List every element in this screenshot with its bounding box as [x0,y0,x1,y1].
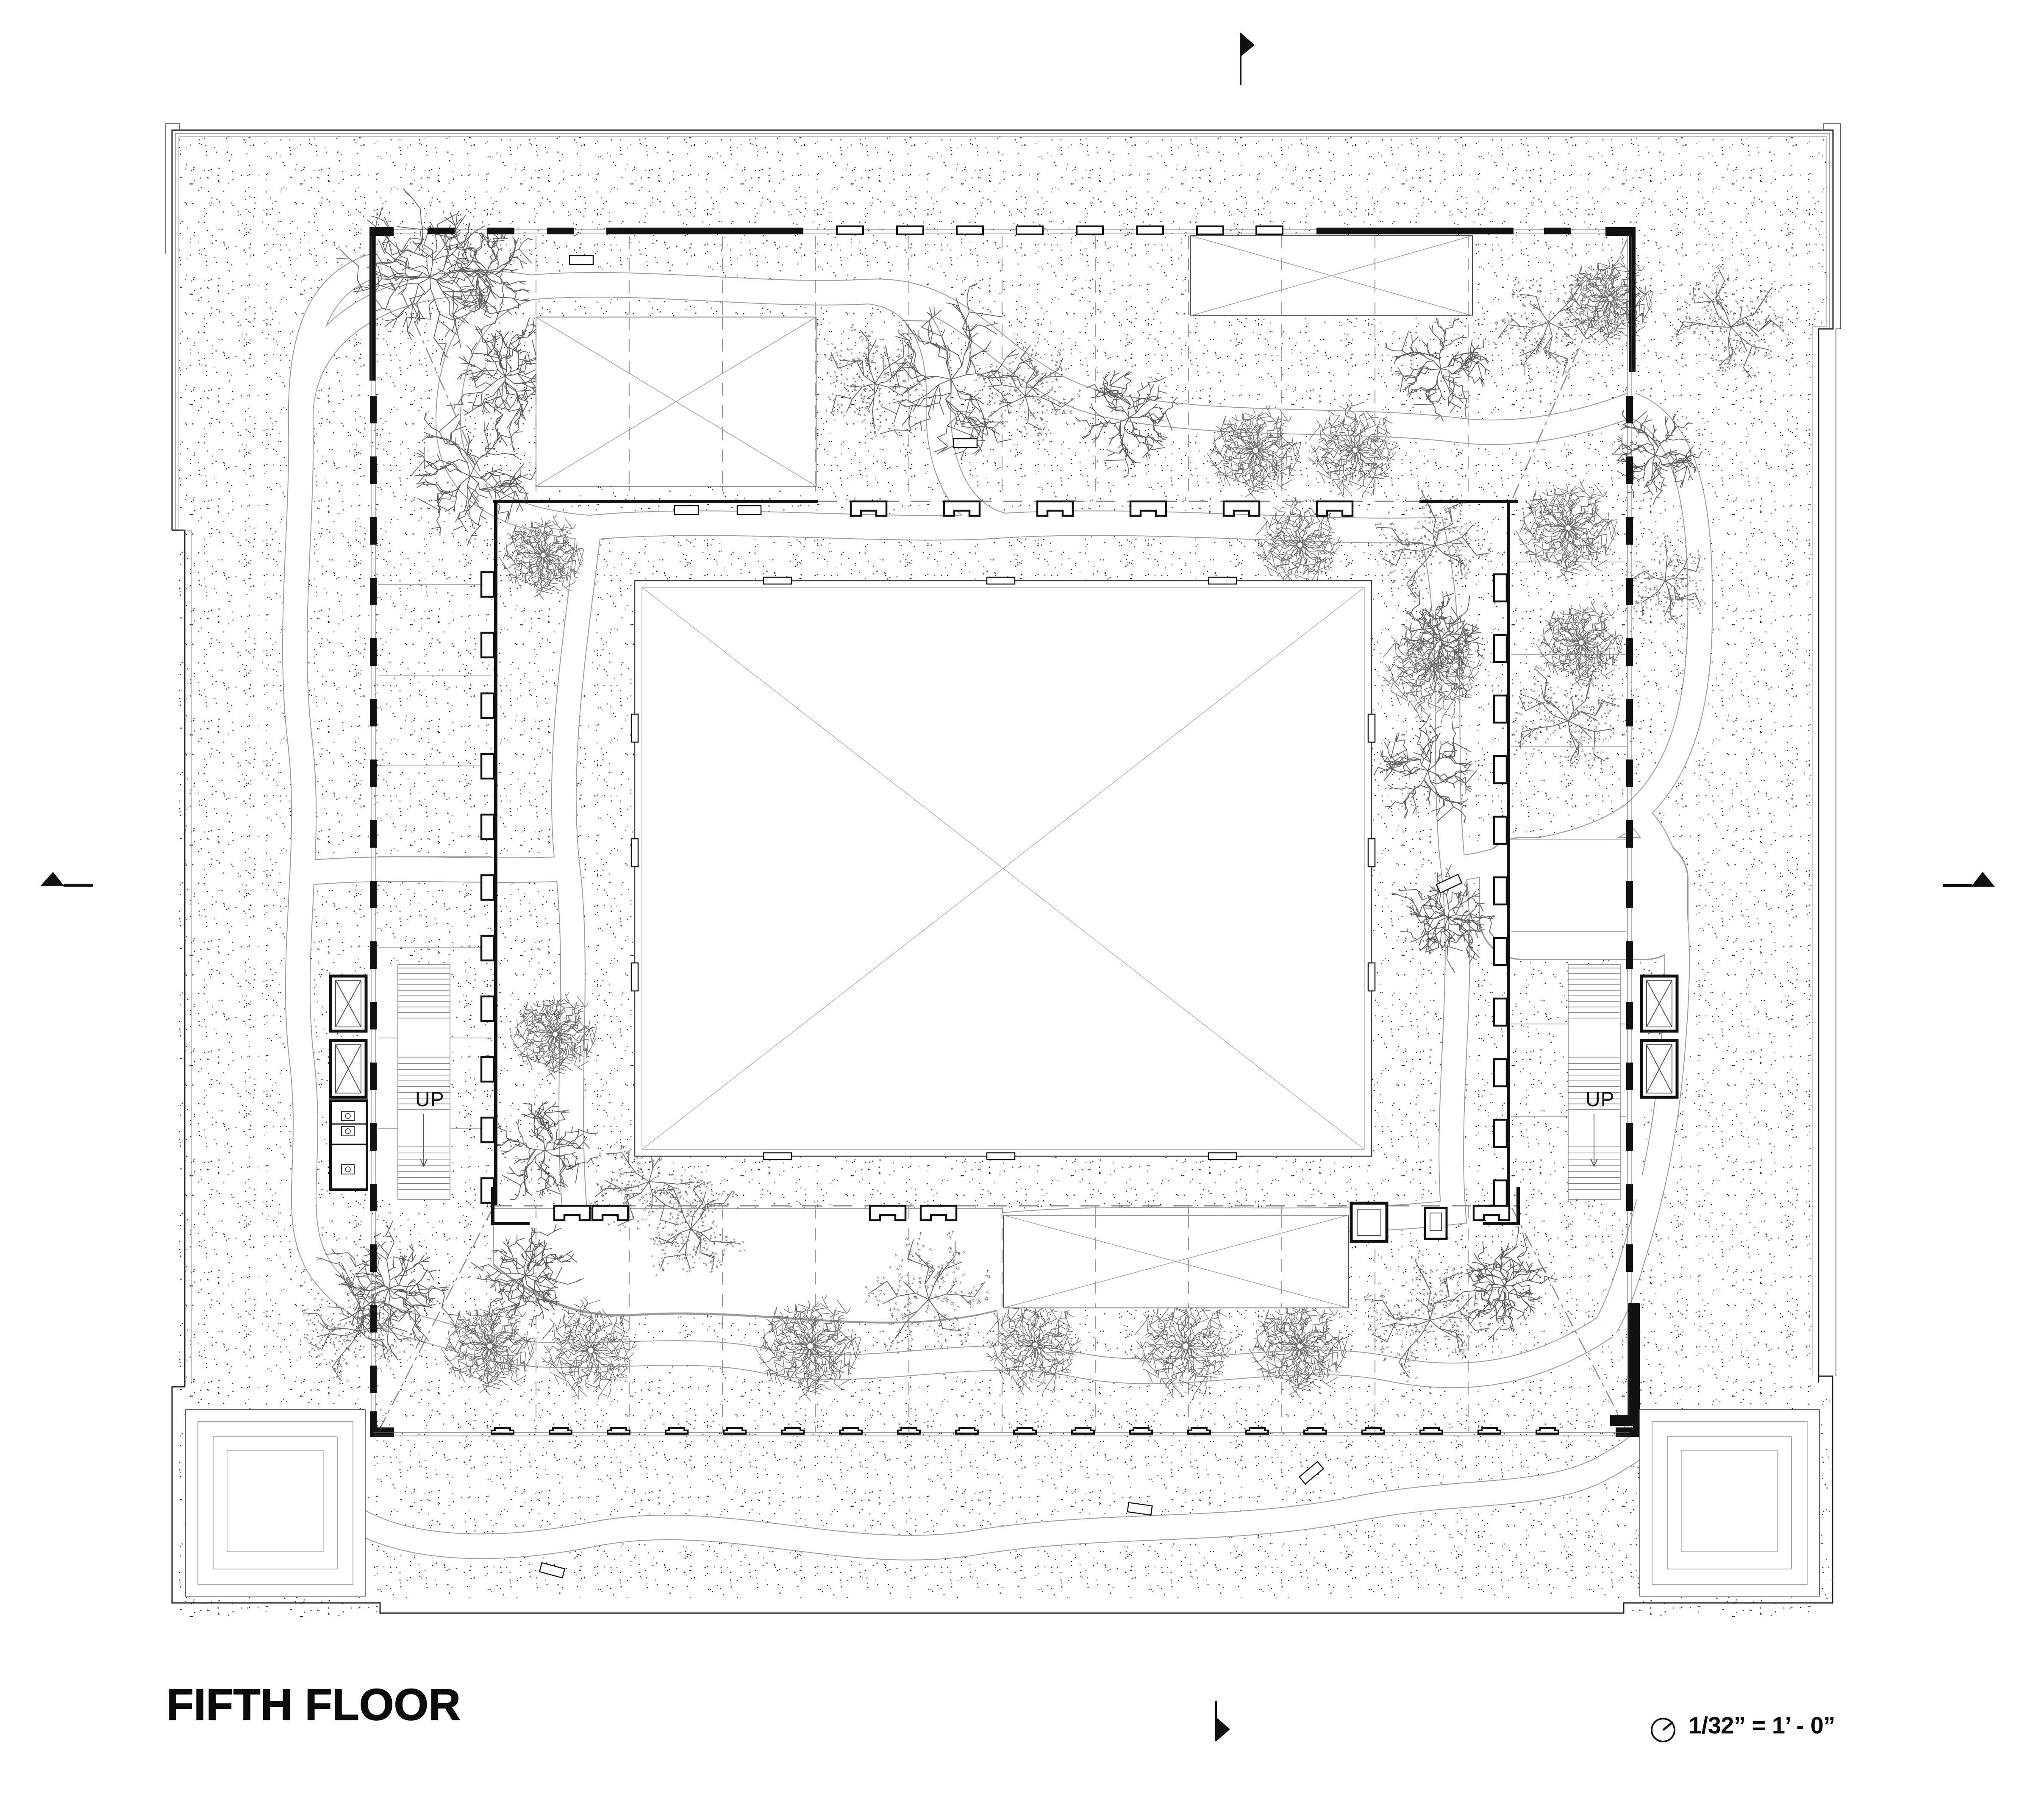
svg-text:UP: UP [1586,1088,1615,1111]
svg-text:1/32” = 1’ - 0”: 1/32” = 1’ - 0” [1689,1712,1835,1739]
svg-text:FIFTH FLOOR: FIFTH FLOOR [167,1680,461,1730]
svg-text:UP: UP [415,1088,444,1111]
